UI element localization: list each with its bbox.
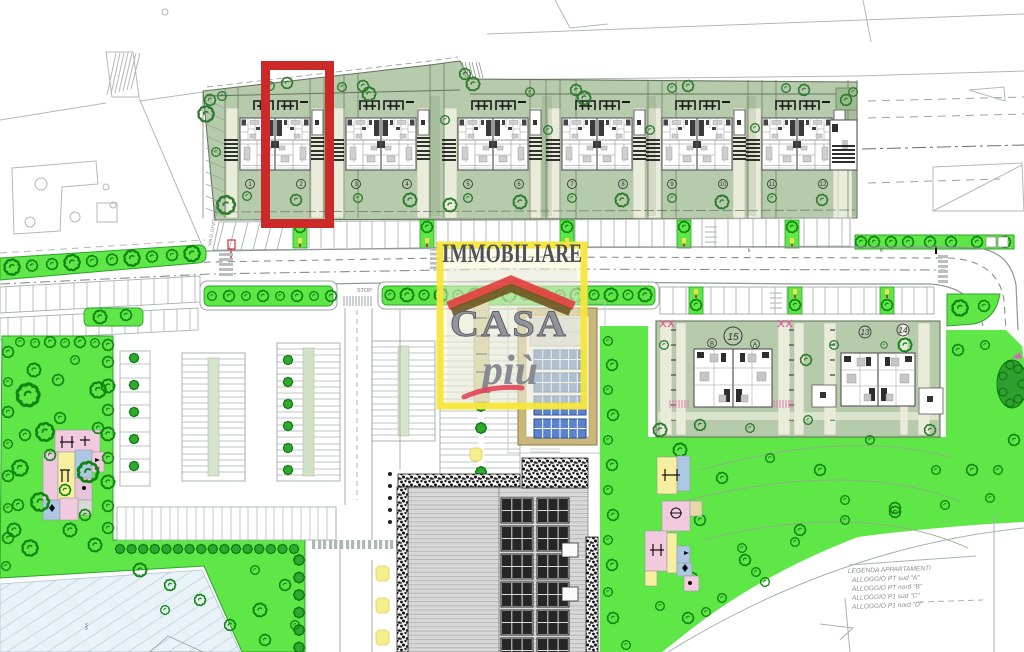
svg-text:VIA: VIA [84,623,89,630]
svg-text:12: 12 [820,182,827,188]
svg-text:B: B [710,342,714,348]
svg-text:STOP: STOP [357,288,372,294]
svg-text:11: 11 [769,182,776,188]
svg-text:IMMOBILIARE: IMMOBILIARE [442,239,582,268]
svg-text:14: 14 [899,326,908,335]
svg-text:13: 13 [861,328,870,337]
svg-text:CASA: CASA [450,304,568,345]
svg-text:15: 15 [727,332,739,343]
svg-text:A: A [753,343,757,349]
svg-text:10: 10 [720,182,727,188]
